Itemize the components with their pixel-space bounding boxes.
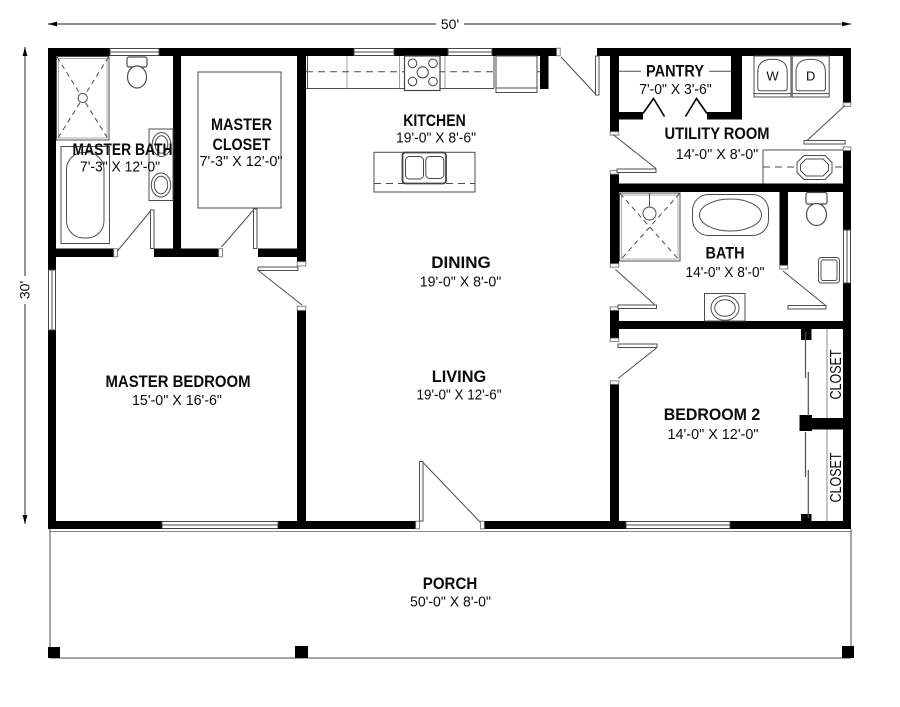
svg-text:19'-0" X 8'-6": 19'-0" X 8'-6" — [396, 131, 476, 147]
svg-text:BEDROOM 2: BEDROOM 2 — [664, 405, 761, 424]
svg-text:MASTER: MASTER — [211, 115, 272, 134]
svg-text:KITCHEN: KITCHEN — [403, 111, 466, 130]
svg-text:14'-0" X 8'-0": 14'-0" X 8'-0" — [676, 147, 759, 163]
svg-text:LIVING: LIVING — [432, 367, 487, 386]
svg-text:D: D — [806, 69, 815, 84]
svg-text:UTILITY ROOM: UTILITY ROOM — [665, 124, 770, 143]
svg-text:MASTER BATH: MASTER BATH — [73, 140, 173, 159]
svg-text:50': 50' — [441, 16, 459, 32]
svg-text:7'-3" X 12'-0": 7'-3" X 12'-0" — [200, 154, 283, 170]
svg-text:PORCH: PORCH — [423, 574, 478, 593]
svg-text:19'-0" X 12'-6": 19'-0" X 12'-6" — [417, 388, 502, 404]
svg-text:CLOSET: CLOSET — [828, 349, 845, 399]
svg-text:PANTRY: PANTRY — [646, 61, 705, 80]
svg-text:CLOSET: CLOSET — [828, 452, 845, 502]
svg-text:15'-0" X 16'-6": 15'-0" X 16'-6" — [132, 393, 222, 409]
svg-text:W: W — [766, 69, 779, 84]
svg-text:MASTER BEDROOM: MASTER BEDROOM — [106, 372, 251, 391]
svg-text:7'-0" X 3'-6": 7'-0" X 3'-6" — [639, 82, 712, 98]
svg-text:50'-0" X 8'-0": 50'-0" X 8'-0" — [410, 595, 491, 611]
svg-text:19'-0" X 8'-0": 19'-0" X 8'-0" — [420, 275, 502, 291]
svg-text:14'-0" X 8'-0": 14'-0" X 8'-0" — [686, 265, 765, 281]
svg-text:DINING: DINING — [431, 253, 491, 272]
svg-text:BATH: BATH — [706, 243, 745, 262]
svg-text:CLOSET: CLOSET — [213, 135, 272, 154]
svg-text:14'-0" X 12'-0": 14'-0" X 12'-0" — [668, 427, 759, 443]
svg-text:30': 30' — [16, 281, 32, 299]
svg-text:7'-3" X 12'-0": 7'-3" X 12'-0" — [80, 160, 160, 176]
